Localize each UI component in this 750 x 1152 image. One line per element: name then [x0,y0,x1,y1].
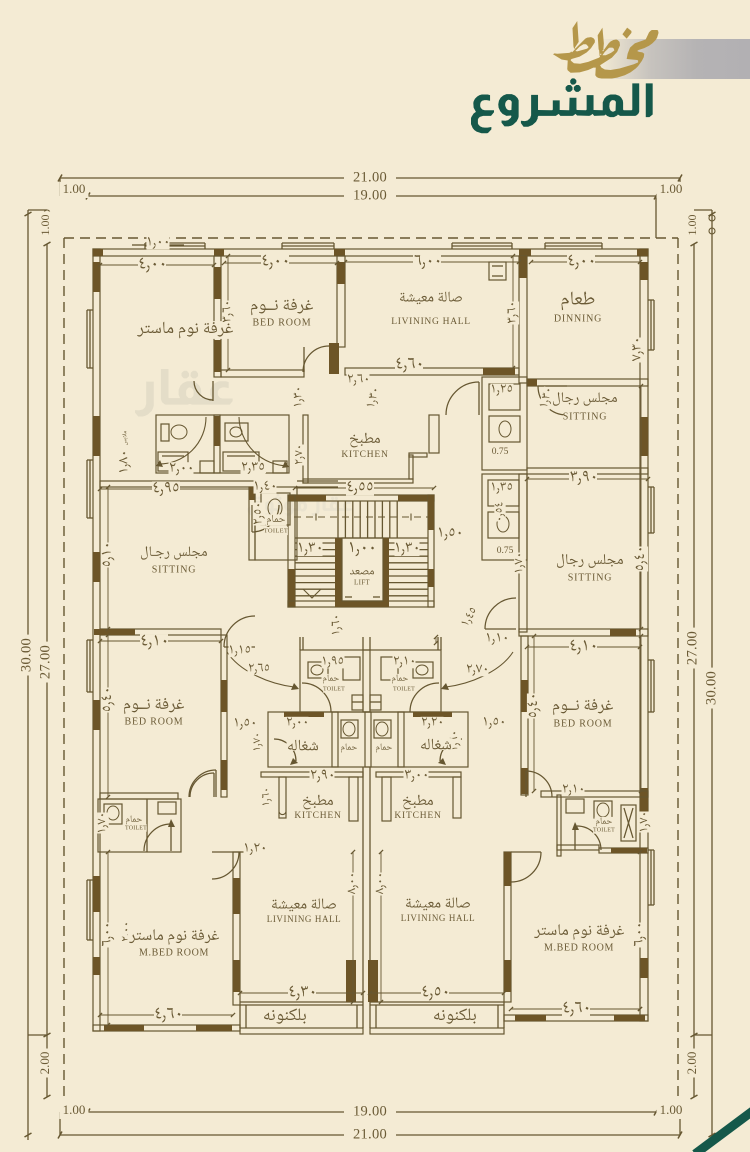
svg-text:DINNING: DINNING [554,313,602,324]
svg-text:LIVINING HALL: LIVINING HALL [391,317,471,327]
svg-text:27.00: 27.00 [684,631,700,665]
svg-text:KITCHEN: KITCHEN [394,811,441,821]
svg-text:KITCHEN: KITCHEN [294,811,341,821]
svg-text:1.00: 1.00 [660,1102,683,1117]
svg-text:27.00: 27.00 [37,645,53,679]
svg-text:SITTING: SITTING [563,411,607,422]
svg-text:TOILET: TOILET [264,527,288,534]
svg-text:SITTING: SITTING [568,572,612,583]
svg-text:1.00: 1.00 [685,215,699,236]
svg-text:KITCHEN: KITCHEN [341,450,388,460]
svg-text:LIVINING HALL: LIVINING HALL [267,914,342,924]
svg-text:19.00: 19.00 [353,187,387,203]
svg-text:0.75: 0.75 [497,546,514,556]
svg-text:TOILET: TOILET [125,825,147,831]
svg-text:19.00: 19.00 [353,1103,387,1119]
svg-text:30.00: 30.00 [18,638,34,672]
svg-text:30.00: 30.00 [703,671,719,705]
svg-text:BED ROOM: BED ROOM [253,317,312,328]
svg-text:TOILET: TOILET [323,686,345,692]
svg-text:1.00: 1.00 [38,215,52,236]
svg-text:1.00: 1.00 [63,181,86,196]
svg-text:BED ROOM: BED ROOM [554,718,613,729]
svg-text:LIFT: LIFT [354,579,370,587]
svg-text:M.BED ROOM: M.BED ROOM [139,947,209,958]
svg-text:TOILET: TOILET [393,686,415,692]
svg-text:SITTING: SITTING [152,564,196,575]
svg-text:2.00: 2.00 [684,1052,699,1075]
svg-text:1.00: 1.00 [660,181,683,196]
svg-text:2.00: 2.00 [37,1052,52,1075]
svg-text:1.00: 1.00 [63,1102,86,1117]
svg-text:21.00: 21.00 [353,1126,387,1142]
svg-text:LIVINING HALL: LIVINING HALL [401,913,476,923]
svg-text:21.00: 21.00 [353,169,387,185]
svg-text:0.75: 0.75 [492,447,509,457]
svg-text:TOILET: TOILET [593,827,615,833]
svg-text:M.BED ROOM: M.BED ROOM [544,942,614,953]
svg-text:BED ROOM: BED ROOM [125,716,184,727]
